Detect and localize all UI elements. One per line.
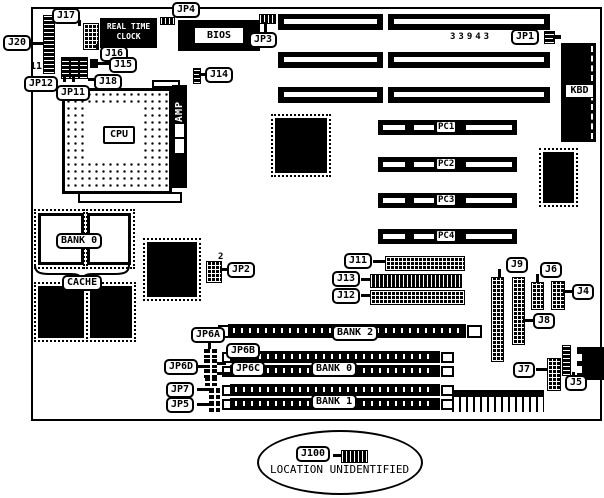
j6-header — [531, 282, 544, 310]
jp6a-jumper — [204, 349, 217, 358]
slot-dash — [414, 162, 434, 167]
leader-line — [536, 368, 547, 371]
slot-contacts — [235, 354, 435, 359]
board-part-number: 33943 — [450, 31, 492, 43]
jp2-jumper — [206, 261, 222, 283]
amp-slot-1 — [175, 124, 184, 137]
slot-dash — [466, 162, 512, 167]
pci-slot-pc1: PC1 — [378, 120, 517, 135]
leader-line — [217, 372, 231, 375]
chipset-chip-1 — [275, 118, 327, 173]
label-j8: J8 — [533, 313, 555, 329]
pci-slot-pc4: PC4 — [378, 229, 517, 244]
leader-line — [217, 362, 226, 365]
label-jp5: JP5 — [166, 397, 194, 413]
real-time-clock-chip: REAL TIME CLOCK — [100, 18, 157, 48]
leader-line — [523, 319, 533, 322]
leader-line — [563, 290, 572, 293]
label-jp6b: JP6B — [226, 343, 260, 359]
simm-latch — [441, 366, 454, 377]
j7-header — [547, 358, 561, 391]
pc3-label: PC3 — [435, 193, 457, 207]
pc2-label: PC2 — [435, 157, 457, 171]
j13-header — [370, 274, 462, 288]
slot-stripe — [284, 57, 377, 62]
label-j14: J14 — [205, 67, 233, 83]
label-cache-bank0: BANK 0 — [56, 233, 102, 249]
note-text: LOCATION UNIDENTIFIED — [270, 464, 409, 476]
jp6c-jumper — [204, 369, 217, 378]
leader-line — [197, 403, 209, 406]
label-j4: J4 — [572, 284, 594, 300]
rtc-text-line1: REAL TIME — [100, 22, 157, 32]
isa-slot-2-left — [278, 52, 383, 68]
slot-stripe — [394, 57, 544, 62]
label-jp4: JP4 — [172, 2, 200, 18]
leader-line — [72, 77, 75, 82]
j9-header — [491, 277, 504, 362]
chipset-chip-2 — [147, 242, 197, 297]
jp12-jumper — [61, 57, 70, 79]
leader-line — [96, 44, 99, 49]
label-jp6d: JP6D — [164, 359, 198, 375]
jp5-jumper — [209, 401, 220, 412]
isa-slot-3-right — [388, 87, 550, 103]
label-j6: J6 — [540, 262, 562, 278]
label-jp11: JP11 — [56, 85, 90, 101]
label-j13: J13 — [332, 271, 360, 287]
jp6b-jumper — [204, 359, 217, 368]
leader-line — [98, 62, 109, 65]
jp3-connector — [259, 14, 276, 24]
j4-header — [551, 281, 565, 310]
jp11-jumper — [70, 57, 79, 79]
slot-dash — [466, 234, 512, 239]
pci-slot-pc3: PC3 — [378, 193, 517, 208]
jp7-jumper — [209, 388, 220, 399]
power-connector — [452, 390, 544, 412]
label-jp12: JP12 — [24, 76, 58, 92]
simm-latch — [441, 385, 454, 396]
label-jp6c: JP6C — [231, 361, 265, 377]
label-j100: J100 — [296, 446, 330, 462]
slot-dash — [383, 125, 405, 130]
isa-slot-1-right — [388, 14, 550, 30]
pin-number-text: 11 — [30, 61, 42, 73]
leader-line — [33, 42, 43, 45]
slot-dash — [383, 198, 405, 203]
j15-jumper — [90, 59, 98, 68]
label-j17: J17 — [52, 8, 80, 24]
jp1-stub — [553, 35, 561, 39]
label-cache: CACHE — [62, 275, 102, 291]
label-j9: J9 — [506, 257, 528, 273]
leader-line — [333, 454, 341, 457]
label-j7: J7 — [513, 362, 535, 378]
j12-header — [370, 290, 465, 305]
label-j15: J15 — [109, 57, 137, 73]
label-j18: J18 — [94, 74, 122, 90]
label-bank2: BANK 2 — [332, 325, 378, 341]
slot-dash — [466, 198, 512, 203]
leader-line — [361, 278, 370, 281]
bios-label: BIOS — [195, 28, 243, 43]
amp-text: AMP — [174, 88, 185, 122]
leader-line — [63, 77, 66, 82]
simm-latch — [222, 399, 232, 410]
leader-line — [197, 388, 209, 391]
j11-header — [385, 256, 465, 271]
simm-latch — [467, 325, 482, 338]
j14-connector — [193, 68, 201, 84]
slot-dash — [414, 125, 434, 130]
label-jp6a: JP6A — [191, 327, 225, 343]
label-jp3: JP3 — [249, 32, 277, 48]
slot-stripe — [394, 92, 544, 97]
label-j12: J12 — [332, 288, 360, 304]
slot-dash — [466, 125, 512, 130]
leader-line — [361, 294, 370, 297]
label-j5: J5 — [565, 375, 587, 391]
cache-sram-3 — [38, 286, 84, 338]
label-jp1: JP1 — [511, 29, 539, 45]
isa-slot-2-right — [388, 52, 550, 68]
pc1-label: PC1 — [435, 120, 457, 134]
leader-line — [220, 268, 227, 271]
jp4-connector — [160, 17, 175, 25]
kbd-label: KBD — [565, 84, 594, 98]
leader-line — [536, 274, 539, 282]
simm-latch — [222, 385, 232, 396]
motherboard-diagram: J20 J17 REAL TIME CLOCK J16 J15 11 JP12 … — [0, 0, 604, 498]
j100-connector — [341, 450, 368, 463]
isa-slot-1-left — [278, 14, 383, 30]
label-bank1: BANK 1 — [311, 394, 357, 410]
label-j20: J20 — [3, 35, 31, 51]
slot-dash — [414, 234, 434, 239]
j5-notch — [577, 354, 582, 361]
leader-line — [498, 269, 501, 277]
j20-connector — [43, 15, 55, 74]
slot-dash — [383, 234, 405, 239]
jp2-pin-number: 2 — [218, 251, 223, 263]
isa-slot-3-left — [278, 87, 383, 103]
label-j11: J11 — [344, 253, 372, 269]
slot-stripe — [284, 92, 377, 97]
cpu-label: CPU — [103, 126, 135, 144]
amp-slot-2 — [175, 139, 184, 153]
j8-header — [512, 277, 525, 345]
simm-latch — [441, 399, 454, 410]
jp6d-jumper — [205, 378, 217, 386]
slot-stripe — [284, 19, 377, 24]
slot-dash — [414, 198, 434, 203]
leader-line — [373, 260, 385, 263]
simm-latch — [441, 352, 454, 363]
label-jp7: JP7 — [166, 382, 194, 398]
pc4-label: PC4 — [435, 229, 457, 243]
label-bank0: BANK 0 — [311, 361, 357, 377]
slot-dash — [383, 162, 405, 167]
rtc-text-line2: CLOCK — [100, 32, 157, 42]
io-chip — [543, 152, 574, 203]
j5-notch — [577, 366, 582, 373]
cache-sram-4 — [90, 286, 132, 338]
slot-contacts — [235, 387, 435, 392]
slot-stripe — [394, 19, 544, 24]
label-jp2: JP2 — [227, 262, 255, 278]
pci-slot-pc2: PC2 — [378, 157, 517, 172]
j5-pin-column — [562, 345, 571, 376]
j18-jumper — [79, 57, 88, 79]
